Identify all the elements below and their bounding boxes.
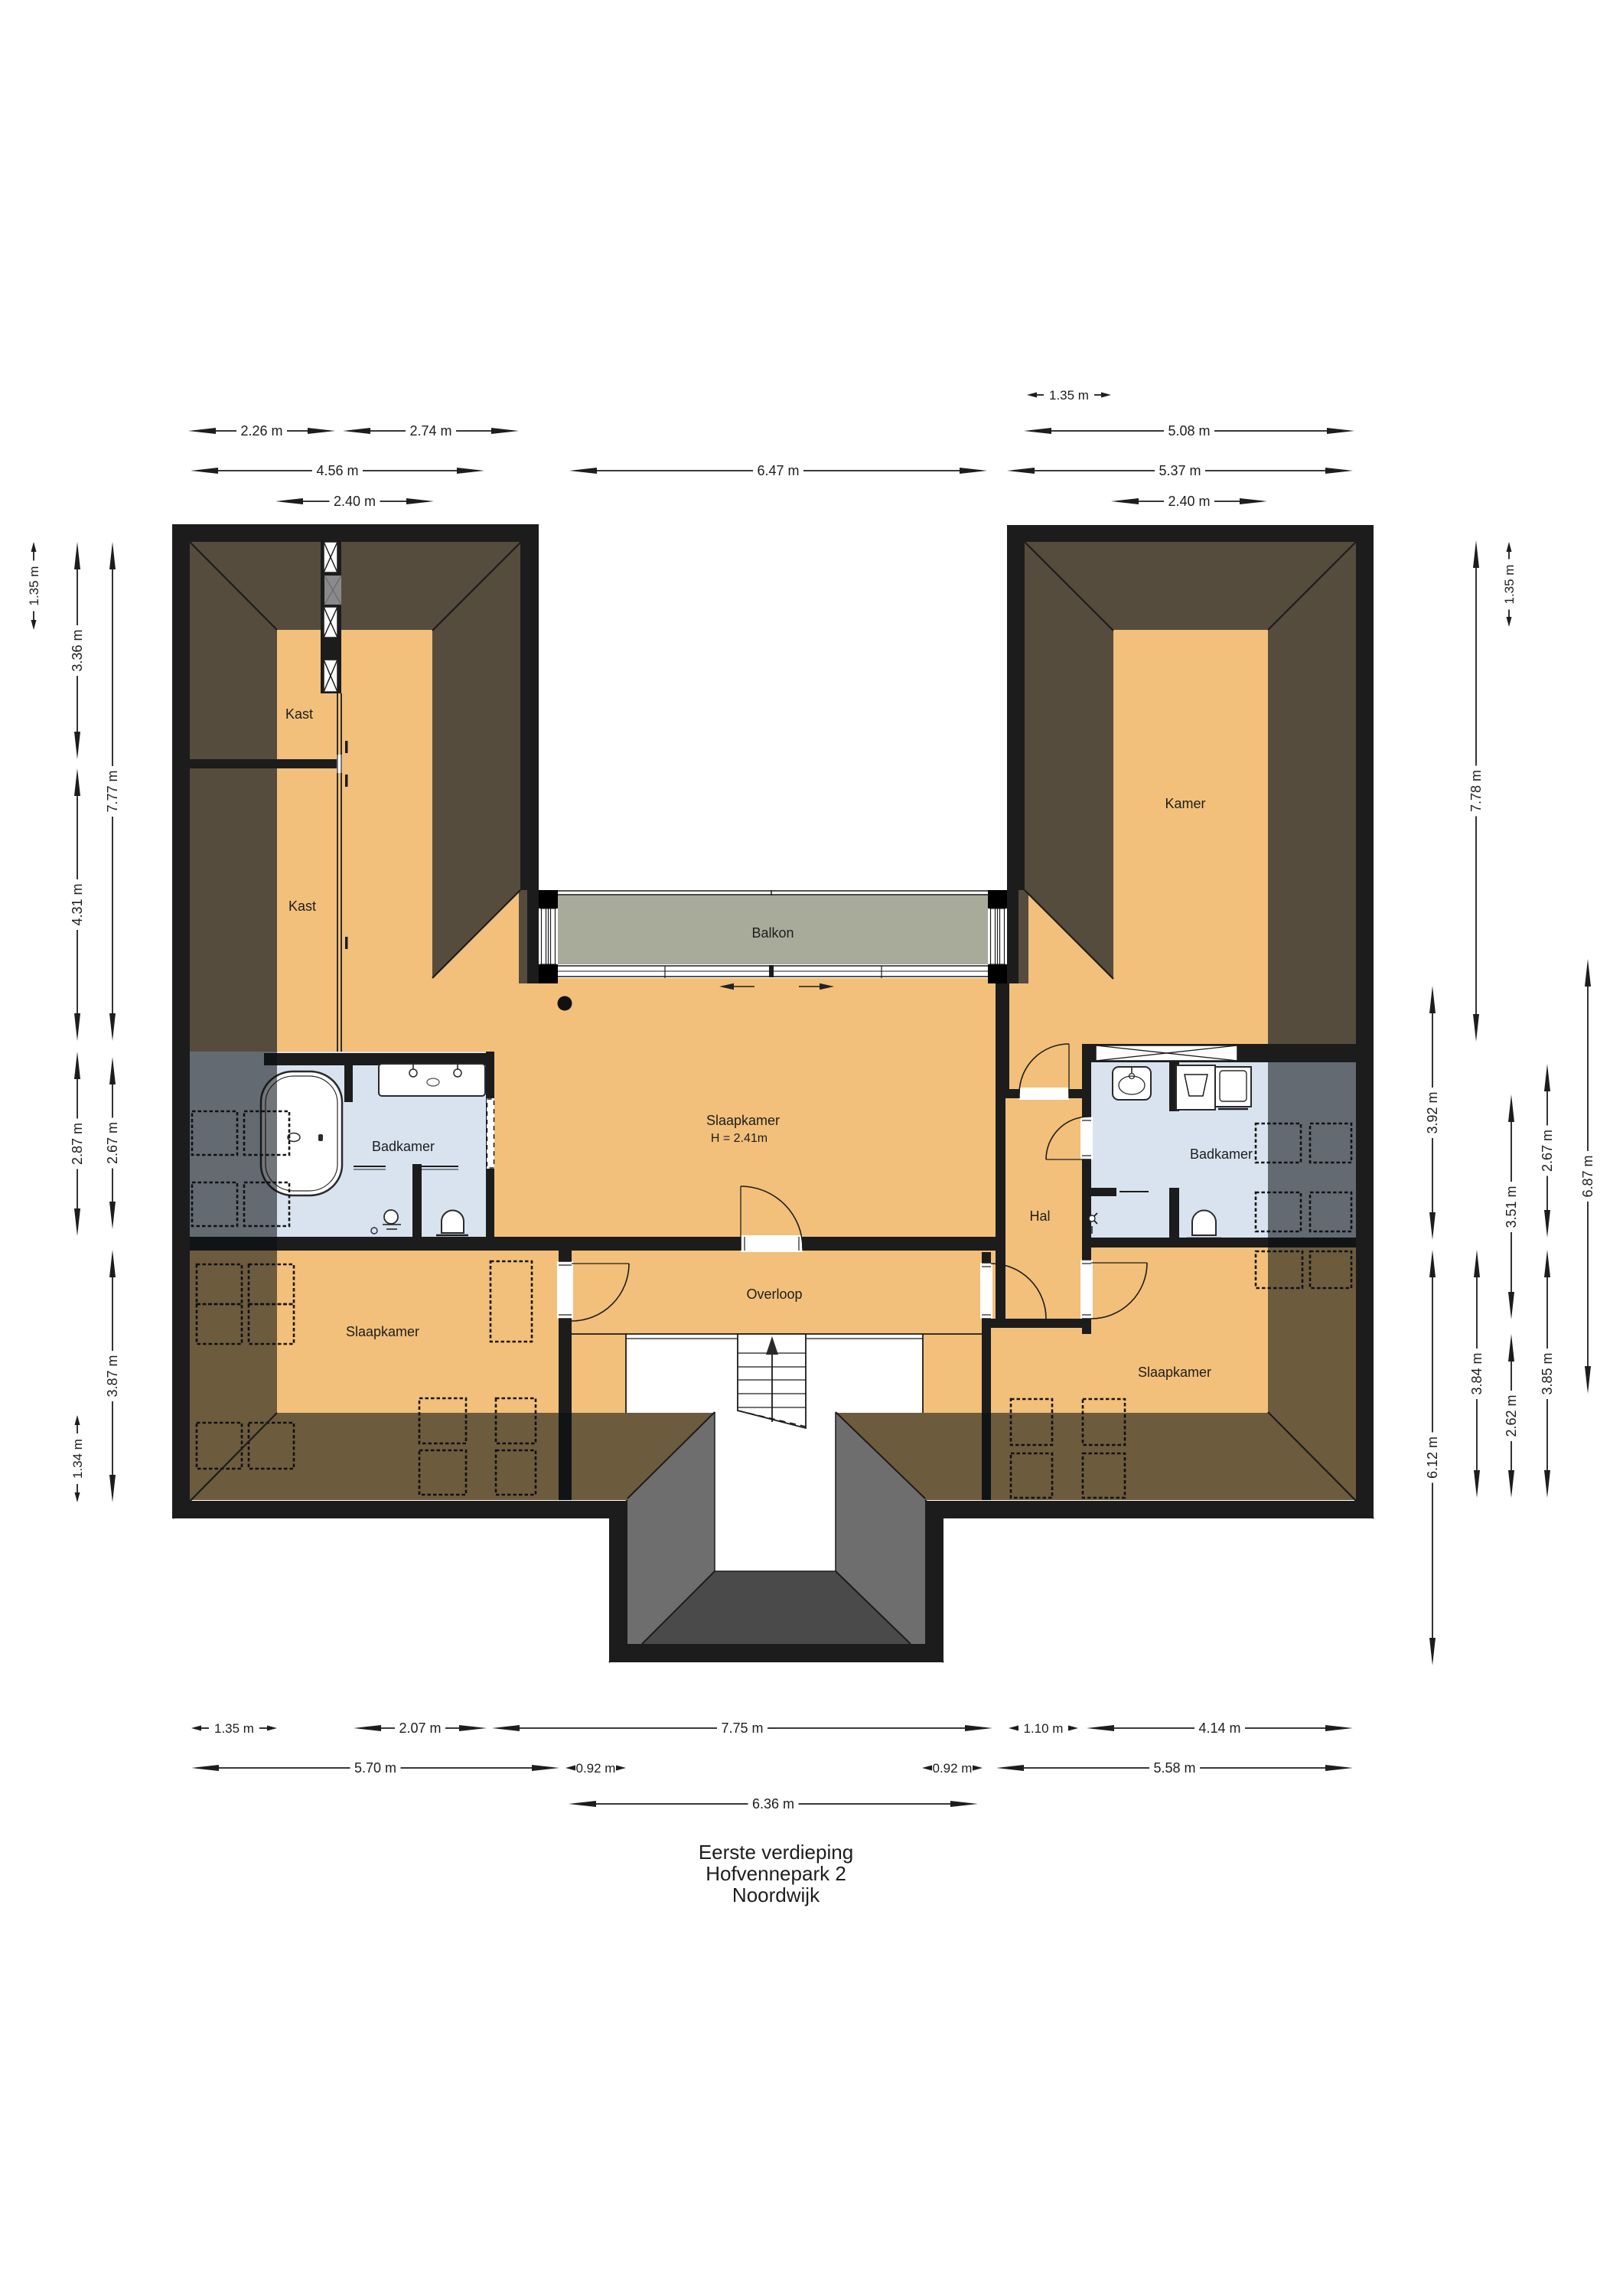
svg-text:Balkon: Balkon — [751, 925, 794, 941]
svg-text:2.67 m: 2.67 m — [1540, 1130, 1555, 1172]
svg-text:4.56 m: 4.56 m — [316, 463, 358, 478]
svg-text:Eerste verdieping: Eerste verdieping — [699, 1841, 853, 1864]
svg-text:5.08 m: 5.08 m — [1168, 423, 1210, 439]
svg-text:Noordwijk: Noordwijk — [732, 1883, 820, 1906]
svg-text:3.85 m: 3.85 m — [1540, 1352, 1555, 1394]
svg-text:7.77 m: 7.77 m — [105, 770, 120, 812]
svg-text:1.35 m: 1.35 m — [214, 1721, 254, 1736]
svg-text:0.92 m: 0.92 m — [933, 1761, 973, 1776]
svg-text:1.35 m: 1.35 m — [27, 566, 41, 606]
svg-text:2.87 m: 2.87 m — [70, 1123, 85, 1165]
svg-text:2.07 m: 2.07 m — [399, 1720, 441, 1736]
svg-text:3.36 m: 3.36 m — [70, 629, 85, 671]
svg-text:4.31 m: 4.31 m — [70, 883, 85, 925]
svg-text:Slaapkamer: Slaapkamer — [706, 1113, 780, 1128]
svg-text:6.87 m: 6.87 m — [1580, 1155, 1595, 1197]
svg-text:H = 2.41m: H = 2.41m — [711, 1132, 768, 1145]
svg-text:1.35 m: 1.35 m — [1049, 388, 1089, 403]
svg-text:Hofvennepark 2: Hofvennepark 2 — [706, 1862, 846, 1885]
svg-text:Hal: Hal — [1029, 1208, 1050, 1224]
svg-text:Badkamer: Badkamer — [372, 1139, 435, 1154]
svg-text:6.36 m: 6.36 m — [752, 1796, 794, 1812]
svg-text:2.40 m: 2.40 m — [1168, 494, 1210, 509]
svg-text:3.51 m: 3.51 m — [1504, 1186, 1519, 1228]
svg-text:6.12 m: 6.12 m — [1425, 1437, 1440, 1479]
svg-text:Kast: Kast — [285, 706, 313, 722]
svg-text:2.67 m: 2.67 m — [105, 1122, 120, 1164]
svg-text:Badkamer: Badkamer — [1190, 1146, 1253, 1162]
svg-text:Overloop: Overloop — [746, 1287, 802, 1302]
svg-text:3.87 m: 3.87 m — [105, 1355, 120, 1397]
svg-text:1.10 m: 1.10 m — [1024, 1721, 1064, 1736]
svg-text:1.35 m: 1.35 m — [1502, 565, 1517, 605]
svg-text:3.92 m: 3.92 m — [1425, 1091, 1440, 1133]
svg-text:Kast: Kast — [288, 899, 316, 914]
svg-text:7.75 m: 7.75 m — [721, 1720, 763, 1736]
svg-text:2.26 m: 2.26 m — [240, 423, 282, 439]
svg-text:0.92 m: 0.92 m — [576, 1761, 616, 1776]
svg-text:4.14 m: 4.14 m — [1198, 1720, 1240, 1736]
svg-text:5.58 m: 5.58 m — [1153, 1760, 1195, 1776]
svg-text:6.47 m: 6.47 m — [757, 463, 799, 478]
svg-text:7.78 m: 7.78 m — [1468, 770, 1484, 812]
svg-text:2.40 m: 2.40 m — [334, 494, 376, 509]
svg-text:1.34 m: 1.34 m — [70, 1439, 85, 1479]
svg-text:5.37 m: 5.37 m — [1159, 463, 1201, 478]
svg-text:3.84 m: 3.84 m — [1469, 1352, 1484, 1394]
svg-text:Slaapkamer: Slaapkamer — [1138, 1365, 1211, 1380]
svg-text:Kamer: Kamer — [1165, 796, 1205, 811]
svg-text:2.62 m: 2.62 m — [1504, 1394, 1519, 1437]
svg-text:5.70 m: 5.70 m — [354, 1760, 396, 1776]
svg-text:Slaapkamer: Slaapkamer — [346, 1324, 419, 1339]
svg-text:2.74 m: 2.74 m — [409, 423, 451, 439]
